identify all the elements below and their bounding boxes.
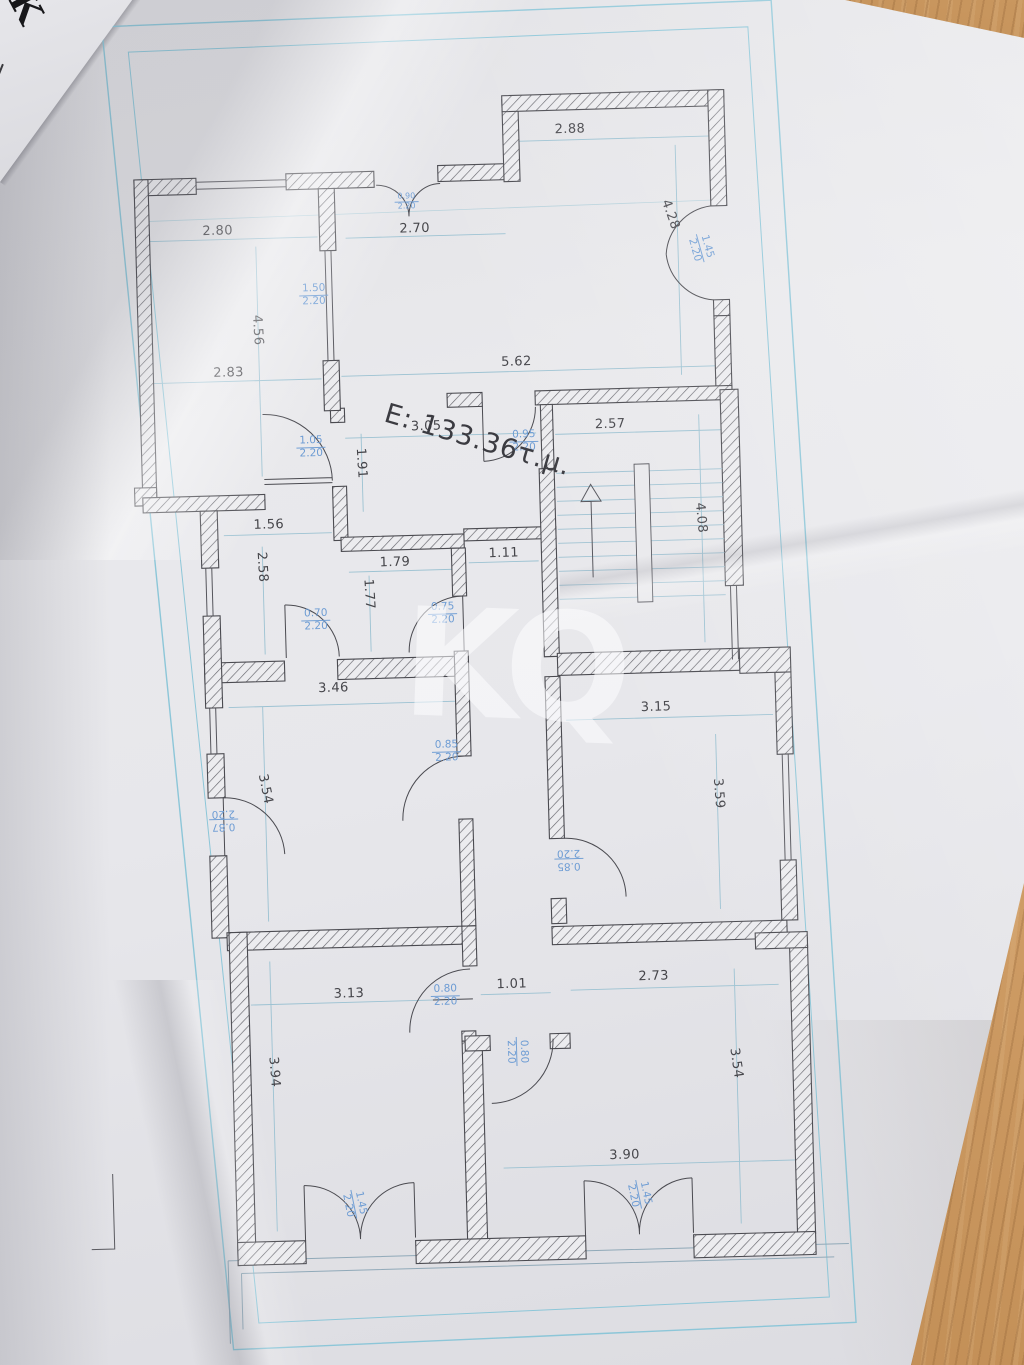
- dim-label: 3.15: [641, 699, 672, 715]
- dim-label: 1.01: [496, 976, 527, 992]
- handwritten-letter: Κ: [0, 0, 52, 31]
- dim-label: 1.56: [253, 517, 284, 533]
- door-size-label: 0.802.20: [505, 1037, 530, 1067]
- stair-direction-arrow: [581, 484, 604, 578]
- door-size-label: 0.902.20: [394, 192, 418, 211]
- door-size-label: 0.852.20: [554, 847, 584, 872]
- dim-label: 2.70: [399, 221, 430, 237]
- pen-stroke: [0, 64, 4, 100]
- dim-label: 3.59: [710, 778, 727, 810]
- door-size-label: 1.502.20: [299, 283, 329, 308]
- construction-lines: [137, 199, 727, 221]
- dim-label: 3.94: [265, 1056, 282, 1088]
- door-size-label: 1.452.20: [624, 1178, 654, 1212]
- door-size-label: 0.872.20: [208, 807, 238, 832]
- dim-label: 2.83: [213, 365, 244, 381]
- dim-label: 2.73: [638, 968, 669, 984]
- watermark: KQ: [399, 576, 621, 757]
- dim-label: 5.62: [501, 354, 532, 370]
- dim-label: 1.11: [488, 545, 519, 561]
- dim-label: 3.90: [609, 1147, 640, 1163]
- stair-rail: [634, 464, 653, 602]
- dim-label: 2.80: [202, 223, 233, 239]
- dim-label: 1.77: [360, 578, 377, 609]
- dim-label: 2.58: [254, 551, 271, 582]
- dim-label: 1.91: [353, 448, 370, 479]
- plan-sheet: 2.88 2.80 2.70 4.28 5.62 2.83 4.56 3.05 …: [0, 0, 1024, 1365]
- dim-label: 3.46: [318, 680, 349, 696]
- dim-label: 4.08: [692, 502, 710, 534]
- dim-label: 3.13: [334, 986, 365, 1002]
- photo-of-floor-plan: Κ: [0, 0, 1024, 1365]
- dim-label: 4.56: [249, 314, 266, 345]
- door-size-label: 1.452.20: [340, 1188, 370, 1222]
- door-size-label: 0.702.20: [301, 608, 331, 633]
- dim-label: 1.79: [379, 554, 410, 570]
- door-size-label: 0.802.20: [430, 983, 460, 1008]
- dim-label: 2.88: [554, 121, 585, 137]
- door-size-label: 1.052.20: [296, 435, 326, 460]
- dim-label: 2.57: [595, 416, 626, 432]
